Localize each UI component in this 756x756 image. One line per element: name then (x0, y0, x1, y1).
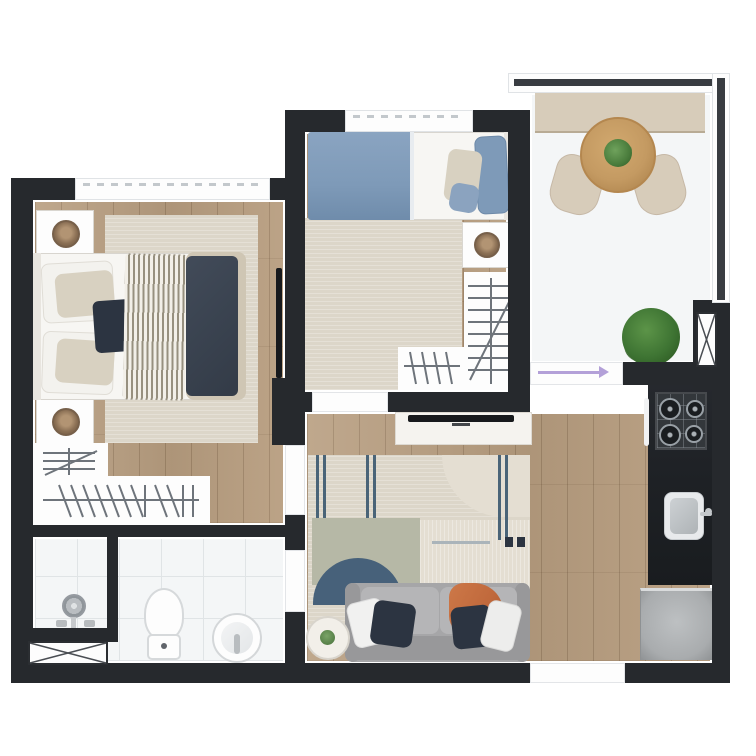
wall-master-top-left (11, 178, 75, 200)
bedroom2-window (345, 110, 473, 132)
rug-navy-square (505, 537, 513, 547)
master-wall-tv-icon (276, 268, 282, 378)
wall-kitchen-right (712, 375, 730, 683)
balcony-parapet-top-core (514, 79, 724, 86)
bedroom2-pillow-blue-small (448, 182, 480, 214)
wall-master-door-return (272, 378, 305, 445)
bedroom2-door-threshold (312, 392, 388, 412)
shaft-box-left-icon (28, 641, 108, 665)
master-striped-runner (123, 253, 188, 400)
basket-plant-icon (52, 220, 80, 248)
wall-left-outer (11, 178, 33, 683)
flat-tv-icon (408, 415, 514, 422)
table-plant-icon (604, 139, 632, 167)
bathroom-door-threshold (285, 550, 305, 612)
bedroom2-closet-sketch-icon (398, 272, 520, 390)
rug-stripe (316, 455, 319, 518)
shaft-box-balcony-icon (696, 312, 717, 367)
kitchen-faucet-knob (705, 508, 712, 515)
oven-handle-icon (644, 398, 649, 446)
burner-icon (685, 425, 703, 443)
master-navy-duvet (186, 256, 238, 396)
wall-bottom-living (305, 663, 530, 683)
tv-stand (452, 423, 470, 426)
refrigerator (640, 588, 712, 660)
rug-navy-square (517, 537, 525, 547)
basket-plant-icon (474, 232, 500, 258)
master-bed-headboard (33, 253, 41, 400)
sofa-pillow-navy-left (369, 599, 417, 648)
rug-stripe (373, 455, 376, 518)
rug-stripe (323, 455, 326, 518)
master-wardrobe-sketch-icon (33, 443, 210, 525)
shower-handle (84, 620, 95, 627)
master-window (75, 178, 270, 200)
wall-bathroom-top (11, 525, 305, 537)
rug-dash-line (432, 541, 490, 544)
bathroom-faucet-icon (234, 634, 240, 654)
balcony-parapet-right-core (717, 78, 725, 300)
side-table-decor-icon (320, 630, 335, 645)
wall-balcony-kitchen (623, 362, 693, 385)
master-door-threshold (285, 445, 305, 515)
sliding-arrow-head-icon (599, 366, 609, 378)
wall-bottom-left (11, 663, 305, 683)
floor-plan (0, 0, 756, 756)
potted-bush-icon (622, 308, 680, 366)
wall-bedroom2-top-right (473, 110, 508, 132)
toilet-bowl-icon (144, 588, 184, 640)
wall-shower-partition (107, 537, 118, 642)
shower-head-icon (62, 594, 86, 618)
sliding-direction-arrow (538, 371, 600, 374)
rug-stripe (505, 455, 508, 540)
burner-icon (686, 400, 704, 418)
kitchen-sink-basin (670, 498, 698, 534)
wall-bedroom2-right (508, 110, 530, 412)
shower-handle (56, 620, 67, 627)
wall-master-top-right (270, 178, 285, 200)
rug-stripe (366, 455, 369, 518)
wall-shower-low (28, 628, 110, 642)
toilet-flush-button (161, 643, 167, 649)
burner-icon (659, 424, 681, 446)
entry-door (530, 663, 625, 683)
rug-stripe (498, 455, 501, 540)
burner-icon (659, 398, 681, 420)
window-dash-detail (353, 115, 465, 118)
wall-bedroom2-top-left (305, 110, 345, 132)
bedroom2-blue-duvet (308, 132, 414, 220)
window-dash-detail (83, 183, 262, 186)
basket-plant-icon (52, 408, 80, 436)
